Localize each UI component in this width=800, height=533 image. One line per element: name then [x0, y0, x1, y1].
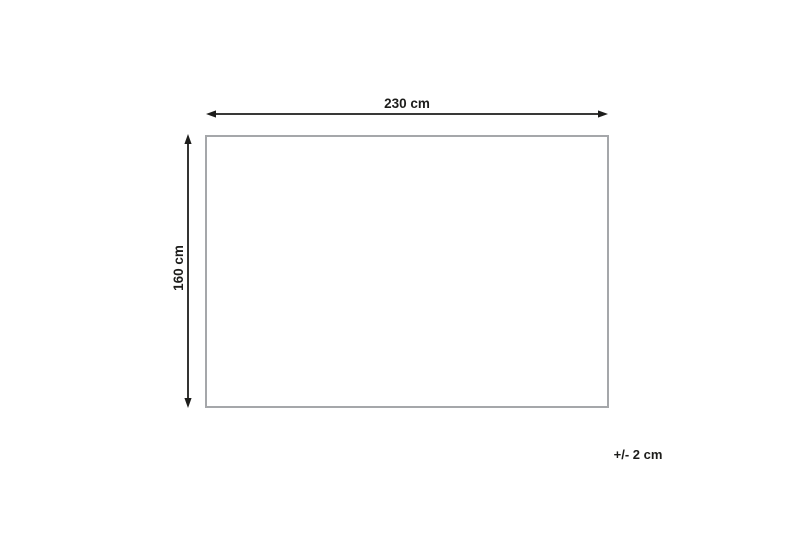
width-arrowhead-right [598, 110, 608, 117]
dimension-diagram: 230 cm 160 cm +/- 2 cm [0, 0, 800, 533]
vertical-double-arrow-icon [181, 134, 195, 408]
height-arrowhead-bottom [184, 398, 191, 408]
product-outline-rectangle [205, 135, 609, 408]
tolerance-label: +/- 2 cm [614, 447, 663, 463]
height-arrowhead-top [184, 134, 191, 144]
width-arrowhead-left [206, 110, 216, 117]
horizontal-double-arrow-icon [206, 107, 608, 121]
